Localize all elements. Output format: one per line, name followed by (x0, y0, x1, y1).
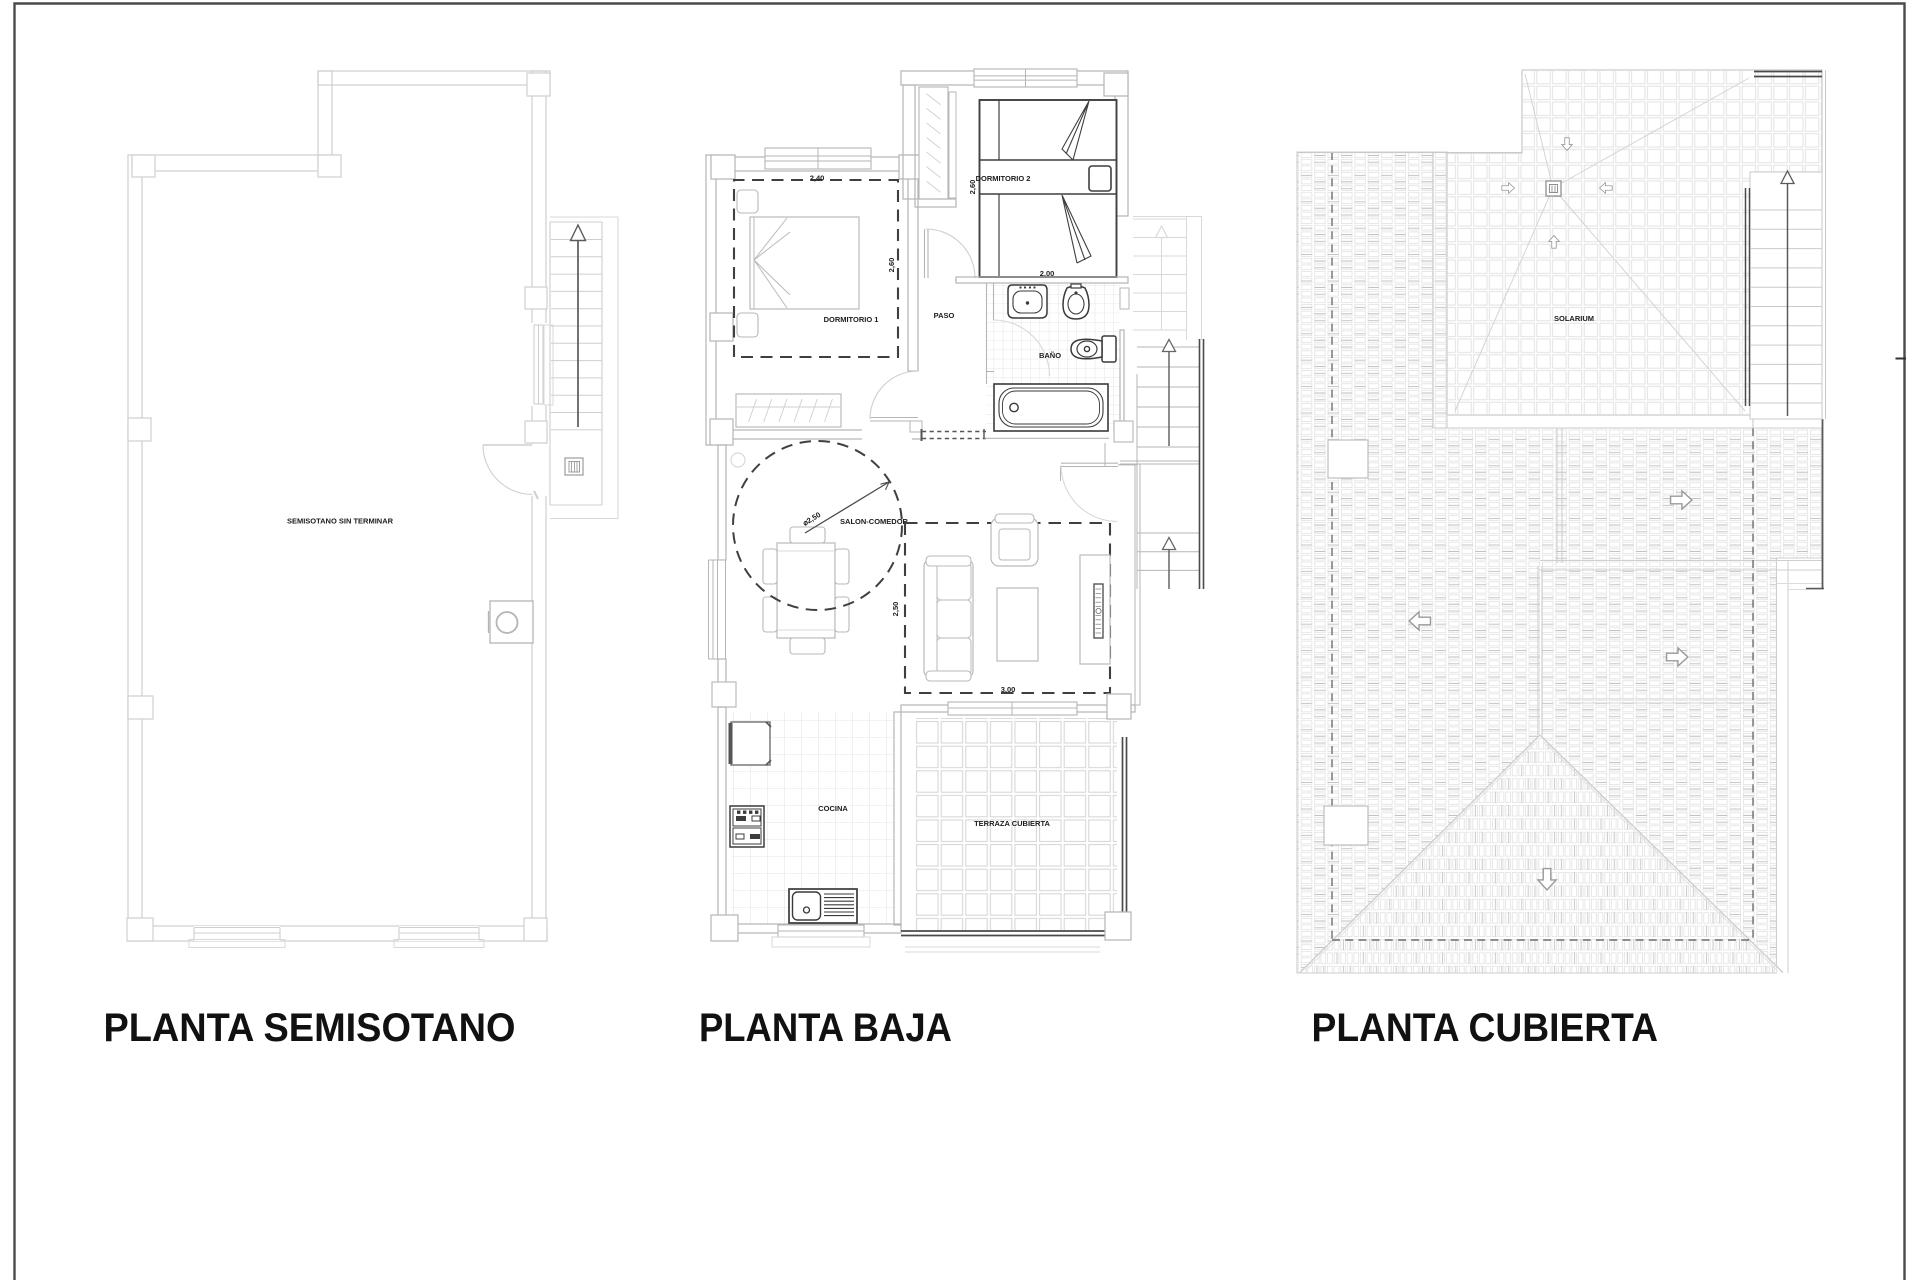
svg-text:PASO: PASO (934, 311, 955, 320)
svg-text:PLANTA BAJA: PLANTA BAJA (699, 1006, 952, 1050)
svg-text:PLANTA SEMISOTANO: PLANTA SEMISOTANO (104, 1006, 516, 1050)
svg-text:2,60: 2,60 (887, 258, 896, 273)
svg-text:2,50: 2,50 (891, 602, 900, 617)
svg-text:BAÑO: BAÑO (1039, 351, 1061, 360)
svg-text:SALON-COMEDOR: SALON-COMEDOR (840, 517, 908, 526)
svg-text:DORMITORIO 1: DORMITORIO 1 (824, 315, 879, 324)
svg-text:2,40: 2,40 (810, 174, 825, 183)
svg-text:3,00: 3,00 (1001, 685, 1016, 694)
svg-text:DORMITORIO 2: DORMITORIO 2 (976, 174, 1031, 183)
svg-text:COCINA: COCINA (818, 804, 848, 813)
svg-text:TERRAZA CUBIERTA: TERRAZA CUBIERTA (974, 819, 1050, 828)
svg-text:SEMISOTANO SIN TERMINAR: SEMISOTANO SIN TERMINAR (287, 517, 394, 526)
svg-text:SOLARIUM: SOLARIUM (1554, 314, 1594, 323)
svg-text:PLANTA CUBIERTA: PLANTA CUBIERTA (1312, 1006, 1659, 1050)
svg-text:2,60: 2,60 (968, 180, 977, 195)
